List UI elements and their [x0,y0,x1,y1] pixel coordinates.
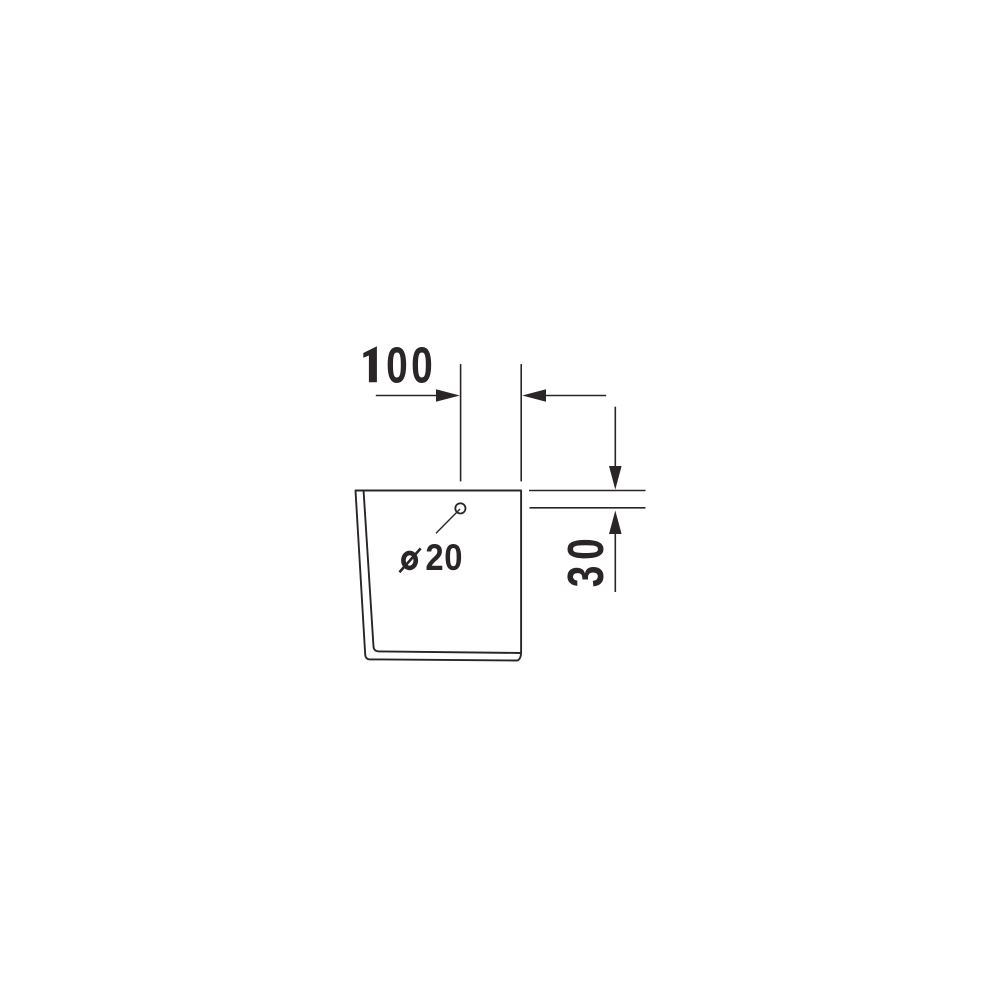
svg-text:20: 20 [425,537,463,579]
svg-text:30: 30 [557,533,614,588]
svg-text:00: 00 [386,337,436,394]
